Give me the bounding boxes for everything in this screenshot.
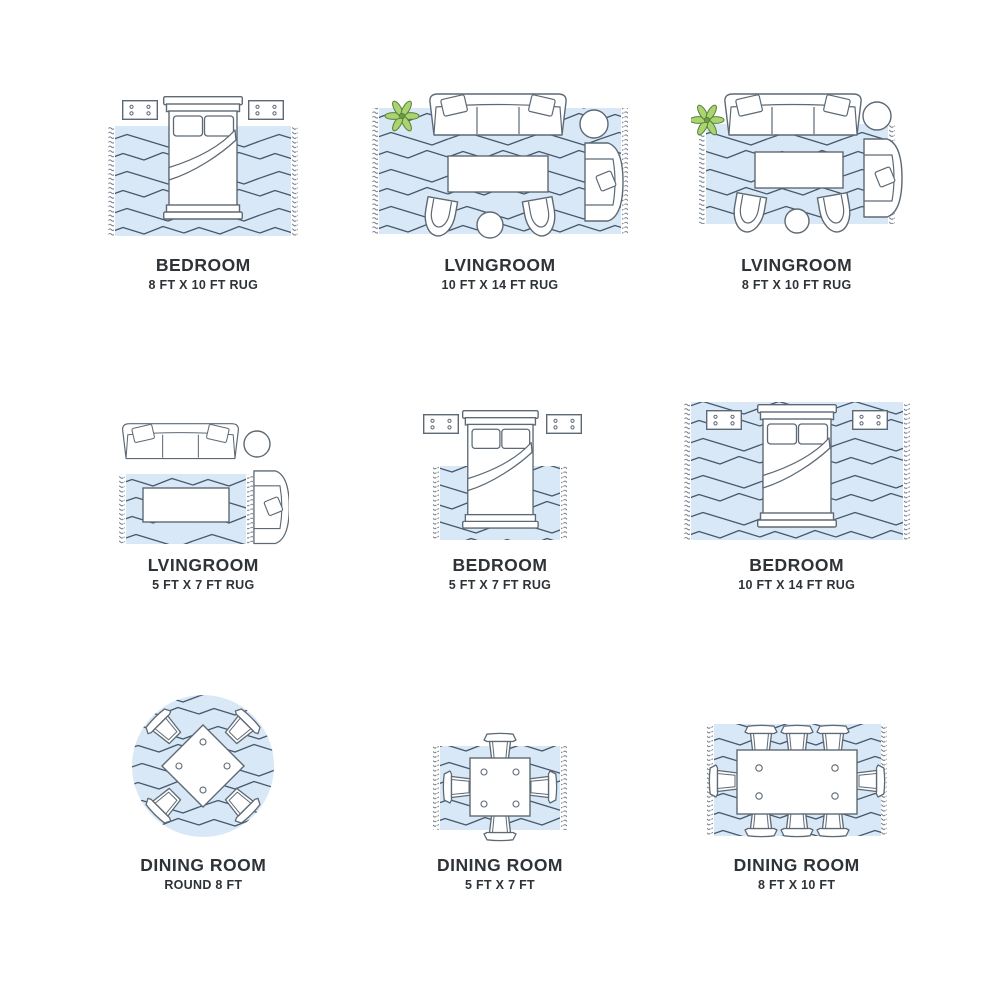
room-title: DINING ROOM (437, 855, 563, 875)
rug-size: 10 FT X 14 FT RUG (442, 278, 559, 292)
dining-table-icon (470, 758, 530, 816)
rug-size: 5 FT X 7 FT (437, 878, 563, 892)
rug-fringe (684, 402, 690, 540)
rug-fringe (699, 124, 705, 224)
rug-fringe (372, 108, 378, 234)
side-table-icon (244, 431, 270, 457)
nightstand-icon (706, 411, 741, 430)
armchair-icon (585, 143, 623, 221)
cell-label: LVINGROOM 5 FT X 7 FT RUG (148, 555, 259, 592)
dining-round-8-diagram (123, 686, 283, 846)
room-title: LVINGROOM (741, 255, 852, 275)
room-title: BEDROOM (738, 555, 855, 575)
ottoman-icon (785, 209, 809, 233)
dining-table-icon (737, 750, 857, 814)
nightstand-icon (547, 415, 582, 434)
cell-dining-8x10: DINING ROOM 8 FT X 10 FT (648, 634, 945, 934)
cell-label: LVINGROOM 10 FT X 14 FT RUG (442, 255, 559, 292)
bedroom-5x7-diagram (416, 406, 584, 546)
coffee-table-icon (755, 152, 843, 188)
cell-label: BEDROOM 10 FT X 14 FT RUG (738, 555, 855, 592)
rug-fringe (292, 126, 298, 236)
bed-icon (164, 97, 243, 219)
cell-dining-5x7: DINING ROOM 5 FT X 7 FT (352, 634, 649, 934)
accent-chair-icon (730, 193, 766, 235)
rug-fringe (108, 126, 114, 236)
cell-livingroom-10x14: LVINGROOM 10 FT X 14 FT RUG (352, 34, 649, 334)
cell-livingroom-8x10: LVINGROOM 8 FT X 10 FT RUG (648, 34, 945, 334)
rug-size: 10 FT X 14 FT RUG (738, 578, 855, 592)
rug-fringe (561, 466, 567, 540)
rug-size: 5 FT X 7 FT RUG (148, 578, 259, 592)
cell-label: BEDROOM 5 FT X 7 FT RUG (449, 555, 551, 592)
rug-size: 8 FT X 10 FT (734, 878, 860, 892)
nightstand-icon (424, 415, 459, 434)
cell-bedroom-8x10: BEDROOM 8 FT X 10 FT RUG (55, 34, 352, 334)
room-title: LVINGROOM (442, 255, 559, 275)
cell-label: BEDROOM 8 FT X 10 FT RUG (148, 255, 258, 292)
bedroom-10x14-diagram (684, 398, 910, 546)
rug-fringe (433, 466, 439, 540)
side-table-icon (863, 102, 891, 130)
rug-size: ROUND 8 FT (140, 878, 266, 892)
accent-chair-icon (817, 193, 853, 235)
nightstand-icon (123, 101, 158, 120)
rug-size-guide-grid: BEDROOM 8 FT X 10 FT RUG (55, 0, 945, 934)
room-title: DINING ROOM (734, 855, 860, 875)
nightstand-icon (852, 411, 887, 430)
room-title: DINING ROOM (140, 855, 266, 875)
sofa-icon (725, 94, 861, 135)
livingroom-5x7-diagram (117, 420, 289, 546)
cell-dining-round-8: DINING ROOM ROUND 8 FT (55, 634, 352, 934)
livingroom-8x10-diagram (691, 92, 903, 246)
bed-icon (757, 405, 836, 527)
bed-icon (463, 411, 538, 528)
sofa-icon (123, 424, 239, 459)
cell-label: DINING ROOM ROUND 8 FT (140, 855, 266, 892)
rug-fringe (904, 402, 910, 540)
rug-size: 8 FT X 10 FT RUG (148, 278, 258, 292)
rug-size: 5 FT X 7 FT RUG (449, 578, 551, 592)
rug-fringe (433, 746, 439, 830)
cell-label: LVINGROOM 8 FT X 10 FT RUG (741, 255, 852, 292)
dining-8x10-diagram (704, 716, 890, 846)
room-title: LVINGROOM (148, 555, 259, 575)
bedroom-8x10-diagram (108, 94, 298, 246)
livingroom-10x14-diagram (372, 92, 628, 246)
armchair-icon (864, 139, 902, 217)
cell-livingroom-5x7: LVINGROOM 5 FT X 7 FT RUG (55, 334, 352, 634)
cell-bedroom-10x14: BEDROOM 10 FT X 14 FT RUG (648, 334, 945, 634)
nightstand-icon (249, 101, 284, 120)
room-title: BEDROOM (449, 555, 551, 575)
cell-bedroom-5x7: BEDROOM 5 FT X 7 FT RUG (352, 334, 649, 634)
cell-label: DINING ROOM 5 FT X 7 FT (437, 855, 563, 892)
rug-fringe (119, 474, 125, 544)
coffee-table-icon (448, 156, 548, 192)
rug-size: 8 FT X 10 FT RUG (741, 278, 852, 292)
side-table-icon (580, 110, 608, 138)
dining-5x7-diagram (430, 722, 570, 846)
cell-label: DINING ROOM 8 FT X 10 FT (734, 855, 860, 892)
rug-fringe (247, 474, 253, 544)
coffee-table-icon (143, 488, 229, 522)
rug-fringe (561, 746, 567, 830)
ottoman-icon (477, 212, 503, 238)
sofa-icon (430, 94, 566, 135)
room-title: BEDROOM (148, 255, 258, 275)
armchair-icon (254, 471, 289, 544)
